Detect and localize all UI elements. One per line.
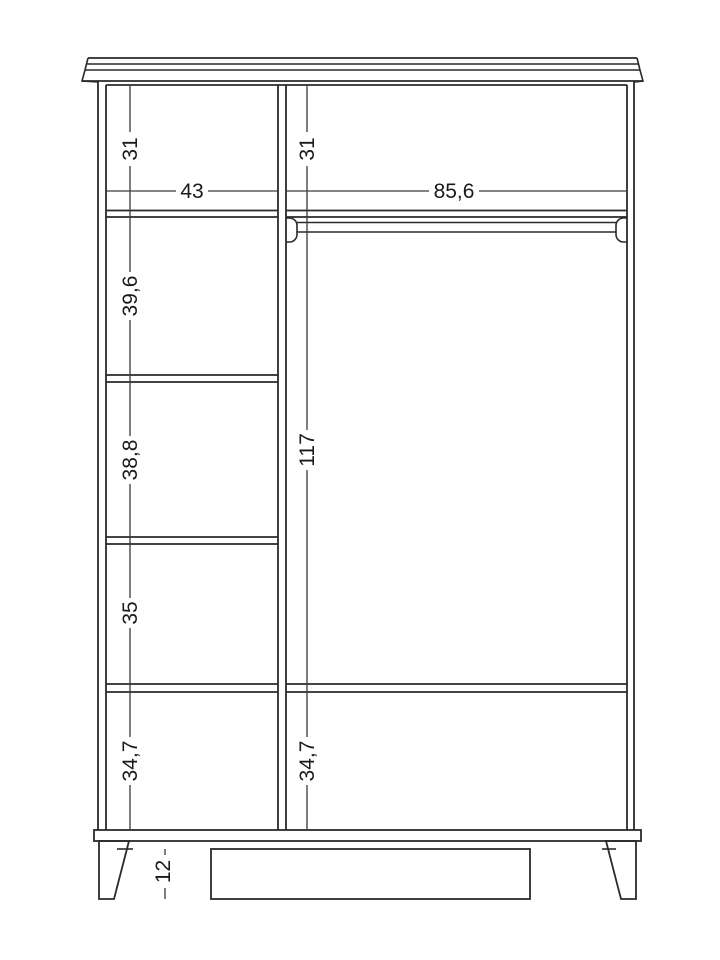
dim-label-left-width: 43 <box>180 180 203 203</box>
bottom-shelf <box>106 684 627 692</box>
shelves <box>106 211 627 693</box>
hanging-rail <box>286 218 627 242</box>
dim-label-leg-height: 12 <box>152 860 175 883</box>
dim-label-right-hanging: 117 <box>296 433 319 466</box>
dim-label-left-section-5: 34,7 <box>119 741 142 782</box>
left-shelf-2 <box>106 375 278 382</box>
dim-label-right-bottom: 34,7 <box>296 741 319 782</box>
left-side-panel <box>98 81 106 830</box>
top-shelf <box>106 211 627 218</box>
dim-label-left-top: 31 <box>119 137 142 160</box>
recessed-base-rail <box>211 849 530 899</box>
rail-bracket-left <box>286 218 297 242</box>
drawing-svg: 31 31 43 85,6 39,6 38,8 35 34,7 117 34,7… <box>0 0 720 960</box>
dimension-labels: 31 31 43 85,6 39,6 38,8 35 34,7 117 34,7… <box>119 137 474 883</box>
dim-label-left-section-3: 38,8 <box>119 440 142 481</box>
dim-label-right-top: 31 <box>296 137 319 160</box>
center-partition <box>278 85 286 830</box>
rail-bracket-right <box>616 218 627 242</box>
carcass <box>98 81 634 830</box>
right-side-panel <box>627 81 634 830</box>
rail-tube <box>297 223 616 233</box>
left-shelf-3 <box>106 537 278 544</box>
dimension-lines <box>106 86 627 899</box>
cornice <box>82 58 643 82</box>
dim-label-right-width: 85,6 <box>434 180 475 203</box>
base-band <box>94 830 641 841</box>
dim-label-left-section-2: 39,6 <box>119 276 142 317</box>
wardrobe-dimension-drawing: 31 31 43 85,6 39,6 38,8 35 34,7 117 34,7… <box>0 0 720 960</box>
dim-label-left-section-4: 35 <box>119 601 142 624</box>
base-assembly <box>94 830 641 899</box>
